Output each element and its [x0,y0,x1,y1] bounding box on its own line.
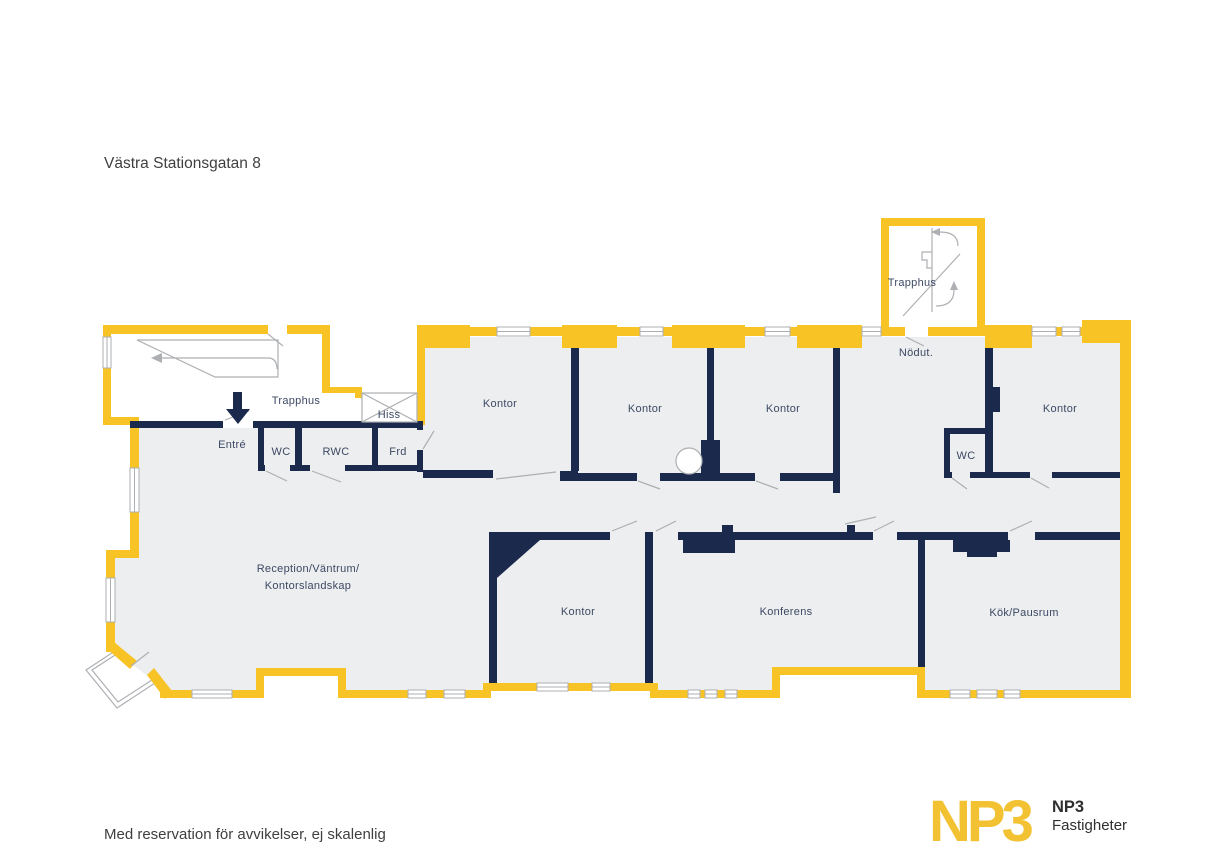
window [537,683,568,691]
room-label-kontor-1: Kontor [483,398,517,410]
window [862,327,881,336]
room-label-entre: Entré [218,439,246,451]
window [765,327,790,336]
window [192,690,232,698]
column-icon [676,448,702,474]
room-label-wc-left: WC [272,446,291,458]
disclaimer-text: Med reservation för avvikelser, ej skale… [104,826,386,843]
window [640,327,663,336]
room-label-kontor-2: Kontor [628,403,662,415]
np3-logo-company: NP3 [1052,798,1084,816]
window [1062,327,1080,336]
window [725,690,737,698]
window [444,690,465,698]
room-label-kontor-4: Kontor [1043,403,1077,415]
window [103,337,111,368]
window [950,690,970,698]
np3-logo-wordmark: NP3 [929,789,1033,854]
room-label-reception-line2: Kontorslandskap [265,580,351,592]
np3-logo-suffix: Fastigheter [1052,817,1127,834]
room-label-trapphus-right: Trapphus [888,277,937,289]
room-label-kontor-5: Kontor [561,606,595,618]
window [408,690,426,698]
floor-plan: Trapphus Hiss Entré WC RWC Frd Kontor Ko… [0,0,1220,863]
room-label-kok-pausrum: Kök/Pausrum [989,607,1058,619]
window [497,327,530,336]
room-label-rwc: RWC [323,446,350,458]
room-label-trapphus-left: Trapphus [272,395,321,407]
page-title: Västra Stationsgatan 8 [104,155,261,172]
room-label-frd: Frd [389,446,406,458]
room-label-nodut: Nödut. [899,347,933,359]
window [1032,327,1056,336]
room-label-reception-line1: Reception/Väntrum/ [257,563,360,575]
np3-logo: NP3 NP3 Fastigheter [929,789,1127,854]
window [592,683,610,691]
room-label-kontor-3: Kontor [766,403,800,415]
window [977,690,997,698]
floor-plan-page: Trapphus Hiss Entré WC RWC Frd Kontor Ko… [0,0,1220,863]
room-label-hiss: Hiss [378,409,401,421]
floor-slabs [86,226,1120,708]
window [705,690,717,698]
room-label-wc-right: WC [957,450,976,462]
window [1004,690,1020,698]
window [688,690,700,698]
window [130,468,139,512]
room-label-konferens: Konferens [760,606,813,618]
window [106,578,115,622]
